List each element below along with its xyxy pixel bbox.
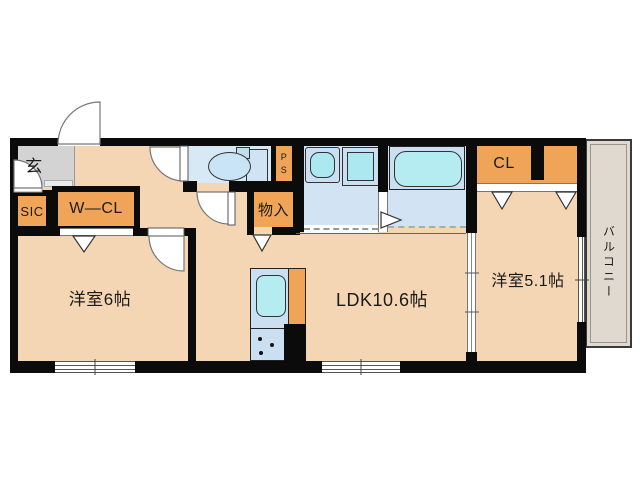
wall-segment xyxy=(577,322,586,373)
window-western6 xyxy=(55,361,135,373)
wall-segment xyxy=(531,138,544,180)
wall-segment xyxy=(378,138,388,192)
cl-folding-opening xyxy=(477,183,577,192)
kitchen-refrigerator-block xyxy=(284,324,306,361)
western6-label: 洋室6帖 xyxy=(50,285,150,309)
sic-label: SIC xyxy=(12,197,52,225)
toilet-bowl xyxy=(208,152,251,181)
wall-segment xyxy=(400,361,585,373)
wet-area-boundary-line xyxy=(296,233,466,234)
pipe-space-label: P S xyxy=(276,148,292,180)
washer-pan-inner xyxy=(347,152,374,181)
wall-segment xyxy=(17,228,60,236)
kitchen-side-panel xyxy=(288,268,306,326)
stove-burner xyxy=(259,351,263,355)
wall-segment xyxy=(188,228,196,361)
stove-burner xyxy=(270,343,274,347)
wall-segment xyxy=(100,138,585,146)
kitchen-sink xyxy=(256,275,286,317)
floorplan-canvas: 玄 SIC W—CL 物入 P S CL 洋室6帖 LDK10.6帖 洋室5.1… xyxy=(0,0,640,480)
wall-segment xyxy=(466,352,477,362)
stove-burner xyxy=(258,337,262,341)
front-door-opening xyxy=(58,138,100,146)
wall-segment xyxy=(247,227,253,235)
bathroom-door xyxy=(378,192,388,232)
wall-segment xyxy=(577,183,585,192)
storage-label: 物入 xyxy=(247,197,300,221)
pipe-space-p: P xyxy=(281,151,288,164)
wall-segment xyxy=(133,228,148,236)
entrance-label: 玄 xyxy=(22,153,46,175)
kitchen-stove xyxy=(250,328,288,361)
bathtub-inner xyxy=(394,151,462,187)
balcony-label: バルコニー xyxy=(597,205,621,320)
washroom-sliding-door xyxy=(304,225,378,233)
window-ldk xyxy=(322,361,400,373)
wall-segment xyxy=(466,183,477,192)
wall-segment xyxy=(10,138,18,373)
wcl-folding-opening xyxy=(60,228,133,236)
wash-basin-bowl xyxy=(310,152,335,178)
pipe-space-s: S xyxy=(281,164,288,177)
sliding-door-ldk-western51 xyxy=(467,233,476,352)
western51-label: 洋室5.1帖 xyxy=(476,267,580,291)
wall-segment xyxy=(10,361,55,373)
wall-segment xyxy=(135,361,322,373)
cl-label: CL xyxy=(482,152,526,176)
wcl-label: W—CL xyxy=(52,197,140,221)
wall-segment xyxy=(183,181,197,192)
ldk-label: LDK10.6帖 xyxy=(318,286,446,312)
